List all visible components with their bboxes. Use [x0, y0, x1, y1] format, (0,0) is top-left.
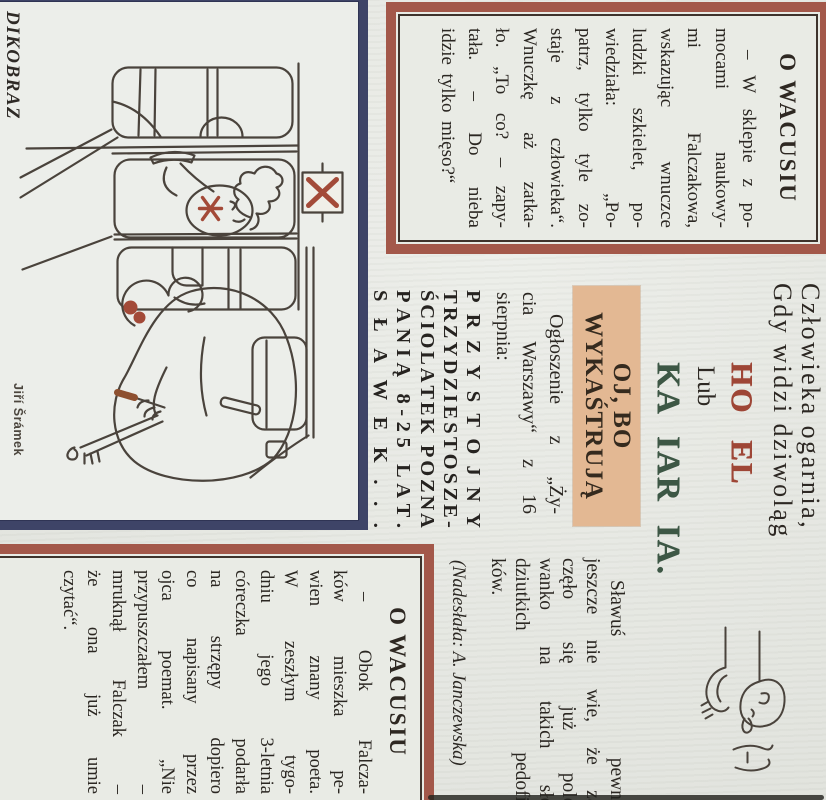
- verse-line-1: Człowieka ogarnia,: [795, 283, 825, 530]
- verse-connector-word: Lub: [691, 366, 719, 406]
- bent-figure-doodle: [696, 622, 786, 777]
- joke-box-1-inner: O WACUSIU –Wsklepiezpo-mocaminaukowy-miF…: [398, 14, 818, 242]
- verse-line-2: Gdy widzi dziwoląg: [767, 283, 797, 539]
- cartoon-artist-signature: Jiří Šrámek: [11, 383, 25, 456]
- highlight-line-2: WYKAŚTRUJĄ: [579, 286, 607, 526]
- joke-box-2-title: O WACUSIU: [384, 570, 410, 794]
- joke-box-wacusiu-2: O WACUSIU –ObokFalcza-kówmieszkape-wienz…: [0, 544, 434, 800]
- painted-red-asterisk: [200, 198, 222, 220]
- cartoon-box-dikobraz: DIKOBRAZ Jiří Šrámek: [0, 0, 368, 530]
- commentary-text: Sławuśpewniejeszczeniewie,żeza-częłosięj…: [485, 558, 628, 800]
- personal-ad-text: PRZYSTOJNYTRZYDZIESTOSZE-ŚCIOLATEK POZNA…: [368, 290, 484, 528]
- cartoon-magazine-label: DIKOBRAZ: [1, 11, 23, 120]
- highlight-line-1: OJ, BO: [607, 286, 635, 526]
- brush-tip: [118, 393, 135, 398]
- joke-box-2-inner: O WACUSIU –ObokFalcza-kówmieszkape-wienz…: [0, 556, 422, 800]
- magazine-scan-page: O WACUSIU –Wsklepiezpo-mocaminaukowy-miF…: [0, 0, 826, 800]
- train-compartment-cartoon-drawing: [15, 8, 355, 513]
- joke-box-1-body: –Wsklepiezpo-mocaminaukowy-miFalczakowa,…: [433, 28, 762, 228]
- broken-neon-word-hotel: HO EL: [724, 362, 760, 485]
- announcement-intro: Ogłoszeniez„Ży-ciaWarszawy“z16sierpnia:: [490, 292, 570, 514]
- joke-box-2-body: –ObokFalcza-kówmieszkape-wienznanypoeta.…: [56, 570, 376, 794]
- rotated-clipping: O WACUSIU –Wsklepiezpo-mocaminaukowy-miF…: [0, 0, 826, 800]
- bent-figure-doodle-drawing: [696, 622, 786, 777]
- highlight-headline: OJ, BO WYKAŚTRUJĄ: [573, 286, 640, 526]
- clipping-edge-line: [428, 795, 824, 800]
- commentary-credit: (Nadesłała: A. Janczewska): [447, 560, 468, 766]
- train-compartment-cartoon: [15, 7, 353, 513]
- broken-neon-word-kawiarnia: KA IAR IA.: [649, 362, 686, 576]
- joke-box-wacusiu-1: O WACUSIU –Wsklepiezpo-mocaminaukowy-miF…: [386, 2, 826, 254]
- joke-box-1-title: O WACUSIU: [774, 28, 800, 228]
